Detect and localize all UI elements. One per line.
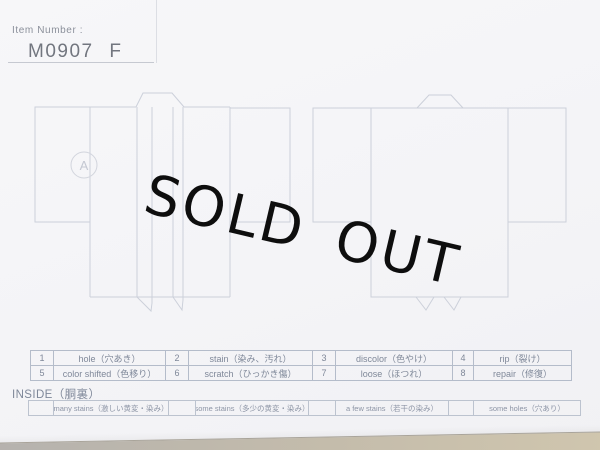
inside-condition-table: many stains（激しい黄変・染み） some stains（多少の黄変・… bbox=[28, 400, 581, 416]
code-label: color shifted（色移り） bbox=[54, 366, 166, 381]
item-number-label: Item Number : bbox=[12, 25, 83, 36]
code-label: repair（修復） bbox=[474, 366, 572, 381]
code-label: discolor（色やけ） bbox=[336, 351, 453, 366]
condition-code-table: 1 hole（穴あき） 2 stain（染み、汚れ） 3 discolor（色や… bbox=[30, 350, 572, 381]
inside-checkbox-cell bbox=[309, 401, 336, 416]
inside-label: some holes（穴あり） bbox=[474, 401, 581, 416]
code-number: 2 bbox=[166, 351, 189, 366]
inside-label: a few stains（若干の染み） bbox=[336, 401, 449, 416]
kimono-condition-sheet-photo: A Item Number : M0907 F bbox=[0, 0, 600, 450]
item-number-underline bbox=[8, 62, 154, 63]
code-number: 8 bbox=[453, 366, 474, 381]
code-label: scratch（ひっかき傷） bbox=[189, 366, 313, 381]
code-number: 7 bbox=[313, 366, 336, 381]
code-number: 4 bbox=[453, 351, 474, 366]
inside-label: many stains（激しい黄変・染み） bbox=[54, 401, 169, 416]
code-label: hole（穴あき） bbox=[54, 351, 166, 366]
code-number: 6 bbox=[166, 366, 189, 381]
code-label: loose（ほつれ） bbox=[336, 366, 453, 381]
code-number: 5 bbox=[31, 366, 54, 381]
inside-checkbox-cell bbox=[29, 401, 54, 416]
inside-checkbox-cell bbox=[169, 401, 196, 416]
code-number: 1 bbox=[31, 351, 54, 366]
item-number-value: M0907 F bbox=[28, 41, 122, 63]
inside-label: some stains（多少の黄変・染み） bbox=[196, 401, 309, 416]
inside-checkbox-cell bbox=[449, 401, 474, 416]
code-label: rip（裂け） bbox=[474, 351, 572, 366]
code-number: 3 bbox=[313, 351, 336, 366]
marker-a-letter: A bbox=[80, 158, 89, 173]
marker-circle-a: A bbox=[71, 152, 97, 178]
code-label: stain（染み、汚れ） bbox=[189, 351, 313, 366]
header-divider-line bbox=[156, 0, 157, 63]
